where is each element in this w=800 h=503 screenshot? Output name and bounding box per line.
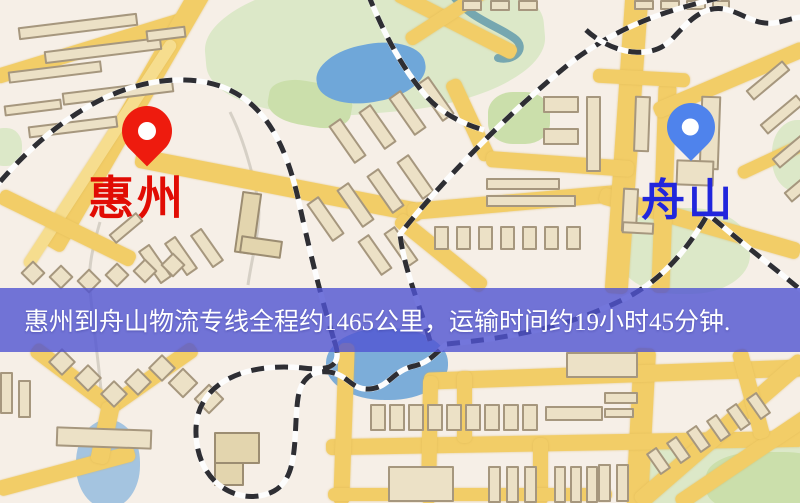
- building: [500, 226, 515, 250]
- building: [522, 226, 537, 250]
- building: [633, 96, 651, 153]
- building: [646, 447, 672, 476]
- building: [570, 466, 582, 503]
- building: [239, 235, 283, 259]
- building: [518, 0, 538, 11]
- building: [566, 352, 638, 378]
- map-canvas: 惠州 舟山 惠州到舟山物流专线全程约1465公里，运输时间约19小时45分钟.: [0, 0, 800, 503]
- building: [358, 104, 397, 150]
- building: [28, 116, 119, 139]
- building: [18, 380, 31, 418]
- building: [746, 392, 772, 421]
- building: [124, 368, 152, 396]
- pin-hole: [134, 118, 159, 143]
- building: [456, 226, 471, 250]
- building: [100, 380, 128, 408]
- building: [446, 404, 462, 431]
- building: [686, 425, 712, 454]
- building: [478, 226, 493, 250]
- route-info-text: 惠州到舟山物流专线全程约1465公里，运输时间约19小时45分钟.: [24, 302, 730, 338]
- map-buildings-layer: [0, 0, 800, 503]
- building: [745, 60, 790, 101]
- building: [48, 264, 73, 289]
- building: [366, 168, 405, 214]
- building: [370, 404, 386, 431]
- building: [522, 404, 538, 431]
- building: [666, 436, 692, 465]
- building: [586, 466, 598, 503]
- building: [598, 464, 611, 502]
- building: [4, 99, 63, 117]
- building: [167, 367, 198, 398]
- building: [490, 0, 510, 11]
- building: [543, 128, 579, 145]
- building: [62, 79, 175, 106]
- building: [18, 13, 139, 41]
- building: [706, 414, 732, 443]
- building: [389, 404, 405, 431]
- building: [783, 162, 800, 203]
- building: [434, 226, 449, 250]
- pin-hole: [678, 115, 702, 139]
- building: [503, 404, 519, 431]
- building: [0, 372, 13, 414]
- building: [604, 408, 634, 418]
- building: [524, 466, 537, 503]
- building: [726, 403, 752, 432]
- building: [306, 196, 345, 242]
- building: [190, 228, 224, 269]
- building: [554, 466, 566, 503]
- building: [193, 383, 224, 414]
- building: [56, 426, 153, 449]
- building: [20, 260, 45, 285]
- building: [48, 348, 76, 376]
- building: [545, 406, 603, 421]
- building: [484, 404, 500, 431]
- building: [712, 0, 730, 10]
- building: [771, 128, 800, 169]
- building: [388, 90, 427, 136]
- building: [686, 0, 706, 10]
- building: [616, 464, 629, 502]
- building: [566, 226, 581, 250]
- building: [486, 195, 576, 207]
- building: [416, 76, 455, 122]
- building: [465, 404, 481, 431]
- origin-label: 惠州: [88, 176, 186, 222]
- building: [660, 0, 680, 10]
- building: [634, 0, 654, 10]
- route-info-banner: 惠州到舟山物流专线全程约1465公里，运输时间约19小时45分钟.: [0, 288, 800, 352]
- building: [145, 26, 186, 43]
- destination-label: 舟山: [641, 179, 735, 223]
- building: [336, 182, 375, 228]
- building: [759, 94, 800, 135]
- building: [104, 262, 129, 287]
- building: [8, 60, 103, 83]
- building: [408, 404, 424, 431]
- building: [506, 466, 519, 503]
- building: [427, 404, 443, 431]
- building: [396, 154, 435, 200]
- building: [388, 466, 454, 502]
- building: [488, 466, 501, 503]
- building: [214, 432, 260, 464]
- building: [604, 392, 638, 404]
- building: [74, 364, 102, 392]
- building: [486, 178, 560, 190]
- building: [586, 96, 601, 172]
- building: [328, 118, 367, 164]
- building: [214, 462, 244, 486]
- building: [544, 226, 559, 250]
- building: [44, 37, 163, 64]
- building: [543, 96, 579, 113]
- building: [462, 0, 482, 11]
